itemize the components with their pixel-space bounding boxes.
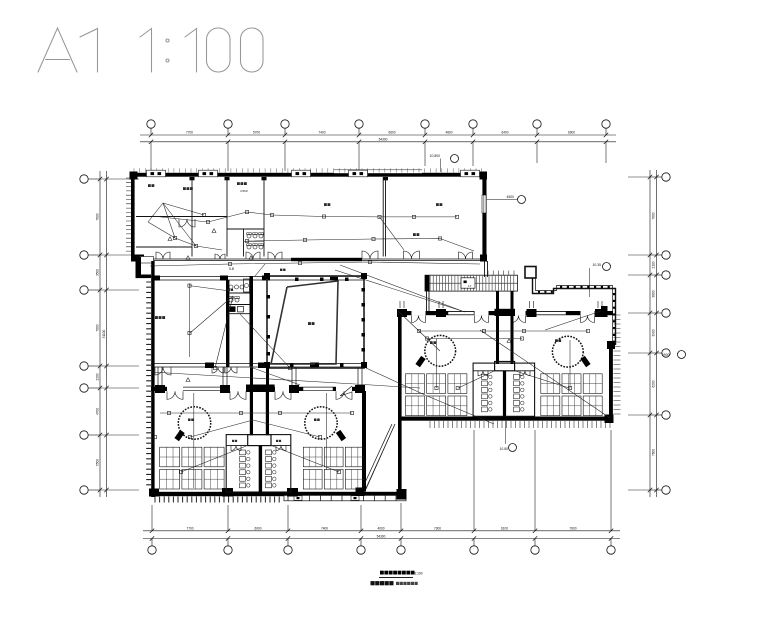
svg-text:6900: 6900 [662,353,670,357]
svg-text:5500: 5500 [96,459,100,466]
svg-text:10.800: 10.800 [430,154,440,158]
svg-text:7700: 7700 [186,131,193,135]
svg-text:6100: 6100 [501,526,508,530]
svg-text:54300: 54300 [377,534,386,538]
svg-text:6000: 6000 [254,526,261,530]
svg-text:7300: 7300 [434,526,441,530]
svg-text:5-B: 5-B [229,267,234,271]
svg-text:5700: 5700 [253,131,260,135]
svg-text:7400: 7400 [321,526,328,530]
svg-text:3800: 3800 [652,290,656,297]
svg-text:7600: 7600 [652,212,656,219]
svg-text:4800: 4800 [445,131,452,135]
svg-text:6900: 6900 [568,131,575,135]
svg-text:7700: 7700 [186,526,193,530]
svg-text:7600: 7600 [96,213,100,220]
svg-text:7600: 7600 [652,449,656,456]
svg-text:4000: 4000 [377,526,384,530]
svg-text:4500: 4500 [506,195,514,199]
svg-text:3500: 3500 [96,269,100,276]
svg-text:7600: 7600 [96,324,100,331]
svg-text:4700: 4700 [96,408,100,415]
svg-text:10.35: 10.35 [593,263,602,267]
svg-text:2100: 2100 [652,261,656,268]
svg-text:3900: 3900 [652,329,656,336]
svg-text:6200: 6200 [652,380,656,387]
svg-text:54300: 54300 [379,138,388,142]
svg-text:10.80: 10.80 [500,447,509,451]
svg-text:2200: 2200 [96,373,100,380]
svg-text:7600: 7600 [569,526,576,530]
svg-text:6400: 6400 [501,131,508,135]
svg-text:6600: 6600 [388,131,395,135]
svg-text:7400: 7400 [318,131,325,135]
svg-text:17: 17 [468,284,472,288]
svg-text:1:100: 1:100 [415,571,423,575]
svg-text:31100: 31100 [102,329,106,338]
svg-text:4.500: 4.500 [240,189,248,193]
